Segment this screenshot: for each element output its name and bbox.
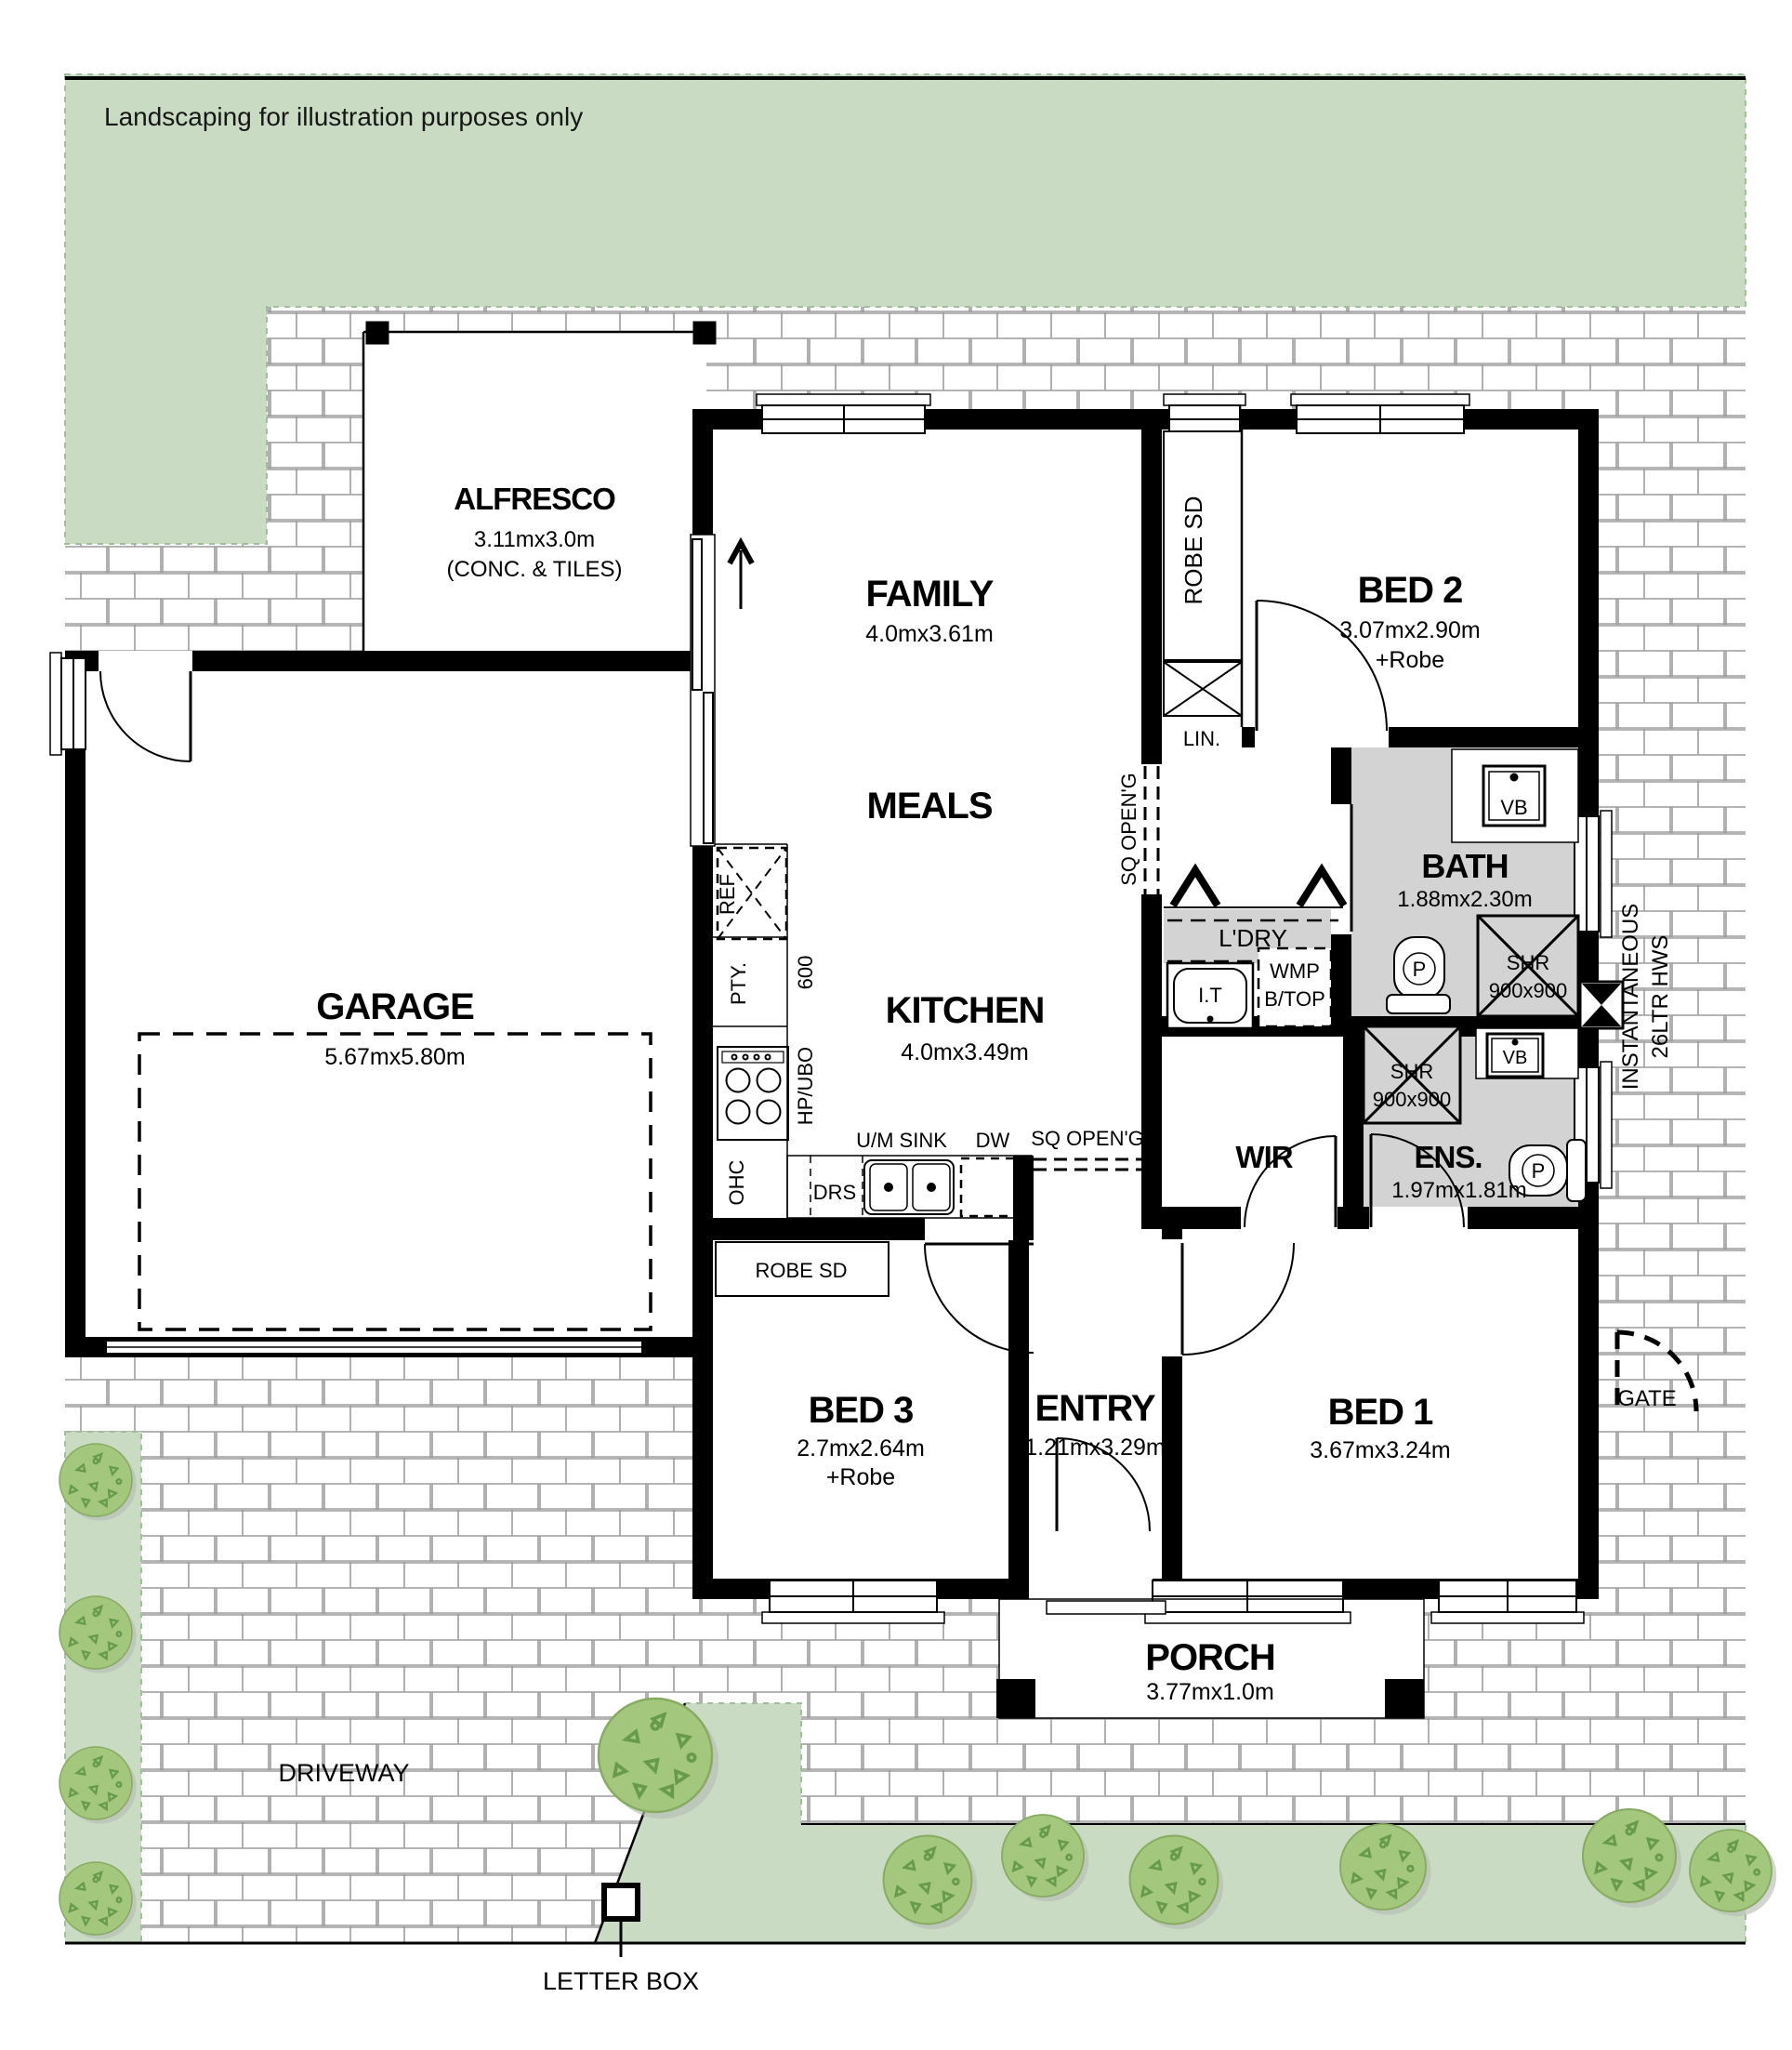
label-garage: GARAGE: [316, 986, 474, 1027]
label-600: 600: [794, 956, 817, 990]
label-ens: ENS.: [1414, 1140, 1482, 1174]
label-meals: MEALS: [867, 786, 993, 827]
label-shr-bath-size: 900x900: [1489, 979, 1567, 1002]
porch-pillar: [1385, 1679, 1424, 1718]
label-lin: LIN.: [1183, 727, 1220, 750]
label-shr-ens-size: 900x900: [1373, 1088, 1451, 1111]
label-hp-ubo: HP/UBO: [794, 1047, 817, 1125]
window-robe: [1164, 394, 1245, 433]
letter-box-symbol: [604, 1885, 638, 1957]
label-entry-dims: 1.21mx3.29m: [1024, 1435, 1165, 1461]
label-btop: B/TOP: [1264, 987, 1325, 1011]
label-ldry: L'DRY: [1219, 924, 1287, 952]
window-garage: [50, 653, 86, 755]
label-it: I.T: [1198, 984, 1222, 1007]
window-family: [757, 394, 930, 433]
label-bed1-dims: 3.67mx3.24m: [1310, 1437, 1450, 1463]
label-hws-1: INSTANTANEOUS: [1618, 904, 1643, 1090]
label-ohc: OHC: [725, 1159, 748, 1205]
label-kitchen-dims: 4.0mx3.49m: [901, 1039, 1029, 1065]
label-bed3: BED 3: [809, 1390, 914, 1431]
floor-plan-page: Landscaping for illustration purposes on…: [0, 0, 1792, 2050]
alfresco-post: [366, 322, 389, 344]
window-bed3: [762, 1580, 944, 1623]
label-bed3-robe: +Robe: [826, 1464, 895, 1490]
label-bath-dims: 1.88mx2.30m: [1397, 887, 1532, 912]
label-bed1: BED 1: [1328, 1392, 1434, 1433]
label-p-bath: P: [1413, 958, 1427, 981]
label-drs: DRS: [813, 1181, 856, 1204]
label-alfresco-dims: 3.11mx3.0m: [474, 527, 595, 552]
label-sq-opening-v: SQ OPEN'G: [1117, 773, 1140, 886]
label-gate: GATE: [1617, 1386, 1677, 1411]
label-letter-box: LETTER BOX: [543, 1967, 699, 1995]
landscaping-note: Landscaping for illustration purposes on…: [104, 102, 583, 131]
label-bed3-dims: 2.7mx2.64m: [797, 1435, 925, 1461]
alfresco-post: [693, 322, 716, 344]
window-bed1: [1431, 1580, 1584, 1623]
window-bath: [1575, 811, 1612, 937]
label-pty: PTY.: [727, 962, 750, 1005]
sliding-door-alfresco: [691, 535, 715, 846]
label-sq-opening-h: SQ OPEN'G: [1031, 1127, 1144, 1150]
label-entry: ENTRY: [1034, 1388, 1155, 1429]
window-entry-sidelight: [1145, 1580, 1351, 1623]
label-shr-ens: SHR: [1390, 1060, 1433, 1083]
label-p-ens: P: [1532, 1159, 1546, 1183]
porch-pillar: [996, 1679, 1035, 1718]
label-shr-bath: SHR: [1507, 951, 1549, 974]
label-kitchen: KITCHEN: [886, 990, 1045, 1031]
label-porch-dims: 3.77mx1.0m: [1146, 1679, 1274, 1705]
label-family-dims: 4.0mx3.61m: [865, 621, 994, 647]
label-um-sink: U/M SINK: [856, 1129, 947, 1152]
label-vb-bath: VB: [1500, 796, 1527, 819]
window-bed2: [1291, 394, 1469, 433]
label-bath: BATH: [1421, 847, 1508, 885]
label-bed2-dims: 3.07mx2.90m: [1339, 617, 1480, 643]
label-vb-ens: VB: [1503, 1048, 1528, 1068]
label-wir: WIR: [1235, 1140, 1293, 1174]
label-wmp: WMP: [1270, 959, 1320, 983]
label-driveway: DRIVEWAY: [278, 1759, 409, 1787]
label-ens-dims: 1.97mx1.81m: [1391, 1178, 1526, 1203]
label-alfresco: ALFRESCO: [454, 482, 615, 516]
label-hws-2: 26LTR HWS: [1648, 935, 1673, 1059]
label-robe-sd-h: ROBE SD: [755, 1259, 847, 1282]
label-family: FAMILY: [866, 574, 995, 615]
label-bed2: BED 2: [1358, 570, 1463, 611]
floor-plan-drawing: Landscaping for illustration purposes on…: [0, 0, 1792, 2050]
label-alfresco-note: (CONC. & TILES): [447, 557, 623, 582]
label-garage-dims: 5.67mx5.80m: [324, 1044, 465, 1070]
label-robe-sd-v: ROBE SD: [1179, 496, 1207, 604]
label-ref: REF: [716, 874, 739, 915]
hws-unit: [1580, 982, 1623, 1028]
label-porch: PORCH: [1145, 1637, 1274, 1678]
entry-step: [1047, 1601, 1166, 1614]
label-bed2-robe: +Robe: [1376, 647, 1444, 673]
label-dw: DW: [976, 1129, 1010, 1152]
